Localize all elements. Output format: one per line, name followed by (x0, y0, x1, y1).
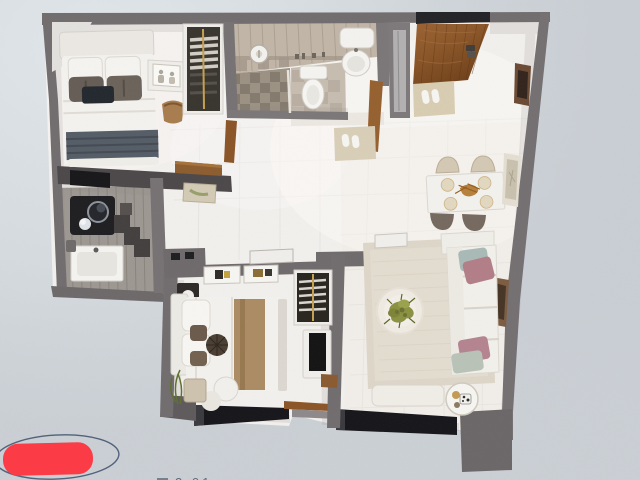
svg-text:2.01: 2.01 (175, 475, 212, 480)
